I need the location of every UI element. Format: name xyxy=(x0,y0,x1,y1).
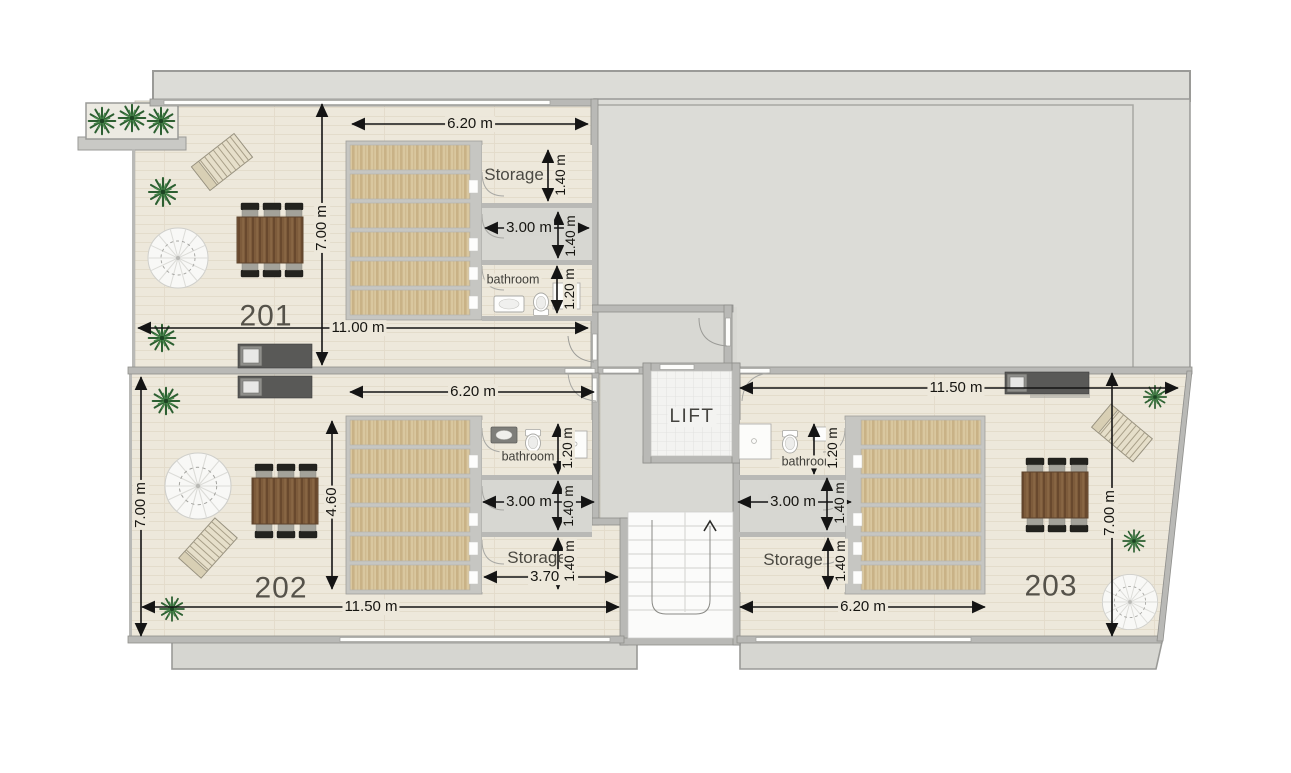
unit-number-201: 201 xyxy=(237,300,294,332)
dim-201-hall-w: 3.00 m xyxy=(504,220,554,236)
kitchen-203 xyxy=(1005,372,1090,398)
dim-201-top: 6.20 m xyxy=(445,116,495,132)
dim-202-top: 6.20 m xyxy=(448,384,498,400)
room-label-storage-201: Storage xyxy=(482,166,546,184)
lift-label: LIFT xyxy=(667,407,716,427)
staircase xyxy=(628,512,733,638)
unit-number-203: 203 xyxy=(1022,570,1079,602)
dim-201-hall-h: 1.40 m xyxy=(564,213,578,258)
spiral-stair-202 xyxy=(165,453,231,519)
dim-201-storage-h: 1.40 m xyxy=(554,152,568,197)
kitchen-202 xyxy=(238,376,312,398)
floor-plan-canvas: 6.20 m 7.00 m 11.00 m Storage 1.40 m 3.0… xyxy=(0,0,1291,773)
dim-203-bath-h: 1.20 m xyxy=(826,425,840,470)
kitchen-201 xyxy=(238,344,312,368)
dim-203-top: 11.50 m xyxy=(927,380,984,396)
dining-set-201 xyxy=(237,203,303,277)
planter-box xyxy=(78,103,186,150)
balcony-203 xyxy=(740,642,1162,669)
dim-202-bath-h: 1.20 m xyxy=(561,425,575,470)
floor-plan-drawing xyxy=(0,0,1291,773)
dim-203-bottom: 6.20 m xyxy=(838,599,888,615)
dim-201-left: 7.00 m xyxy=(314,203,330,253)
dim-202-left: 7.00 m xyxy=(133,480,149,530)
dim-202-hall-w: 3.00 m xyxy=(504,494,554,510)
balcony-202 xyxy=(172,642,637,669)
room-label-bathroom-201: bathroom xyxy=(485,273,542,286)
dim-202-bottom: 11.50 m xyxy=(342,599,399,615)
unit-number-202: 202 xyxy=(252,572,309,604)
dining-set-203 xyxy=(1022,458,1088,532)
room-label-storage-203: Storage xyxy=(761,551,825,569)
spiral-stair-203 xyxy=(1102,574,1157,629)
dining-set-202 xyxy=(252,464,318,538)
dim-203-hall-h: 1.40 m xyxy=(833,480,847,525)
dim-203-hall-w: 3.00 m xyxy=(768,494,818,510)
dim-202-inner: 4.60 xyxy=(324,485,340,518)
dim-203-storage-h: 1.40 m xyxy=(834,538,848,583)
dim-203-right: 7.00 m xyxy=(1102,488,1118,538)
spiral-stair-201 xyxy=(148,228,208,288)
dim-201-bath-h: 1.20 m xyxy=(563,266,577,311)
dim-201-bottom: 11.00 m xyxy=(329,320,386,336)
room-label-storage-202: Storage xyxy=(505,549,569,567)
dim-202-storage-h: 1.40 m xyxy=(563,538,577,583)
dim-202-hall-h: 1.40 m xyxy=(562,483,576,528)
room-label-bathroom-202: bathroom xyxy=(500,450,557,463)
